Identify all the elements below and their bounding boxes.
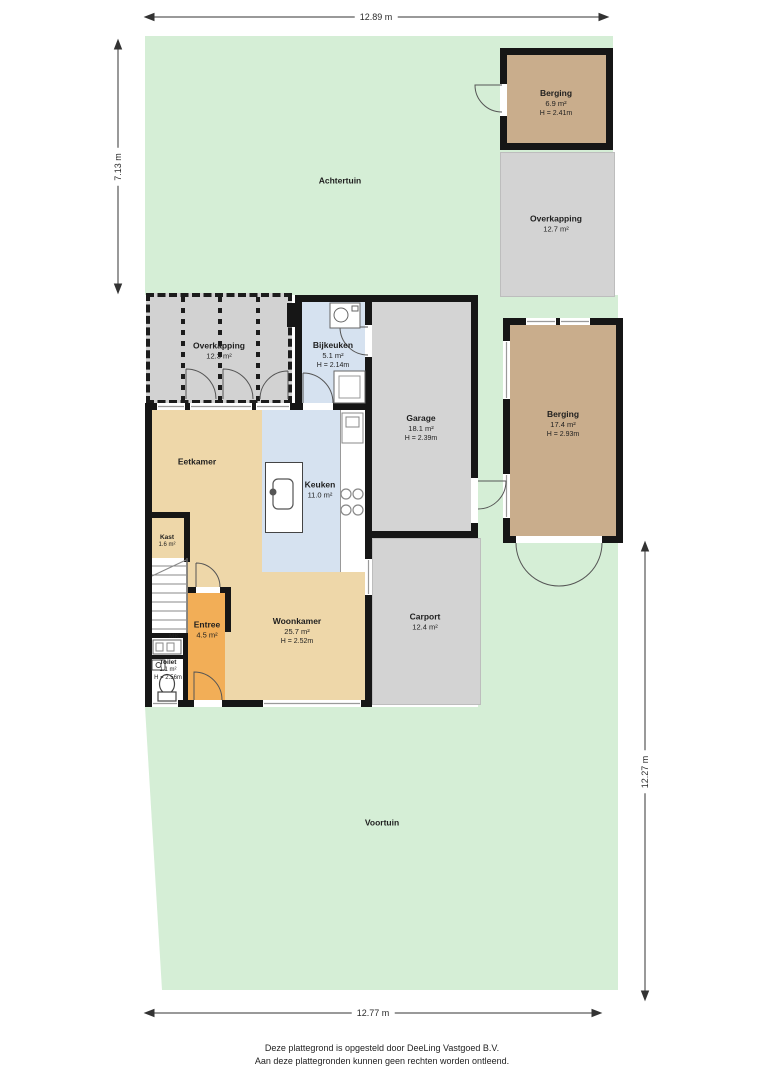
overkapping-right-label: Overkapping 12.7 m²	[530, 214, 582, 235]
eetkamer-label: Eetkamer	[178, 456, 216, 467]
woonkamer-label: Woonkamer 25.7 m² H = 2.52m	[273, 616, 322, 646]
mk-toilet-wall-right	[183, 633, 188, 702]
kast-label: Kast 1.6 m²	[158, 534, 175, 550]
entree-label: Entree 4.5 m²	[194, 620, 220, 641]
garage-label: Garage 18.1 m² H = 2.39m	[405, 413, 438, 443]
entree-wall-top	[188, 587, 228, 593]
dim-left-label: 7.13 m	[113, 148, 123, 186]
toilet-label: Toilet 1.1 m² H = 2.56m	[154, 659, 182, 683]
berging-right-label: Berging 17.4 m² H = 2.93m	[547, 409, 580, 439]
achtertuin-label: Achtertuin	[319, 175, 362, 186]
keuken-label: Keuken 11.0 m²	[305, 480, 336, 501]
berging-top-label: Berging 6.9 m² H = 2.41m	[540, 88, 573, 118]
entree-wall-right	[225, 587, 231, 632]
floor-plan: 12.89 m 7.13 m 12.27 m 12.77 m Achtertui…	[0, 0, 764, 1080]
bijkeuken-label: Bijkeuken 5.1 m² H = 2.14m	[313, 340, 353, 370]
footer-disclaimer: Deze plattegrond is opgesteld door DeeLi…	[0, 1042, 764, 1067]
carport-label: Carport 12.4 m²	[410, 612, 441, 633]
footer-line2: Aan deze plattegronden kunnen geen recht…	[0, 1055, 764, 1068]
mk-label: MK	[169, 633, 179, 641]
voortuin-label: Voortuin	[365, 817, 399, 828]
dim-bottom-label: 12.77 m	[352, 1008, 395, 1018]
overkapping-left-label: Overkapping 12.3 m²	[193, 341, 245, 362]
garden-voortuin	[145, 707, 618, 990]
footer-line1: Deze plattegrond is opgesteld door DeeLi…	[0, 1042, 764, 1055]
dim-right-label: 12.27 m	[640, 751, 650, 794]
overkapping-corner-stub	[287, 303, 295, 327]
kast-wall-right	[184, 512, 190, 562]
dim-top-label: 12.89 m	[355, 12, 398, 22]
